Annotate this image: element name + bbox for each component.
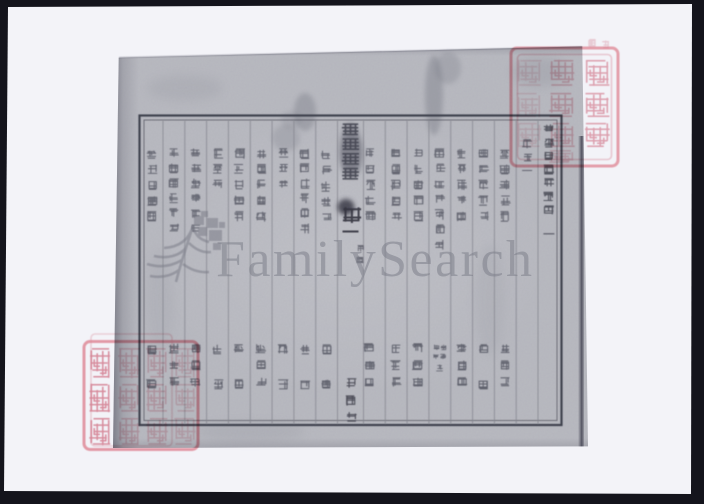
svg-text:FamilySearch: FamilySearch (216, 231, 532, 288)
